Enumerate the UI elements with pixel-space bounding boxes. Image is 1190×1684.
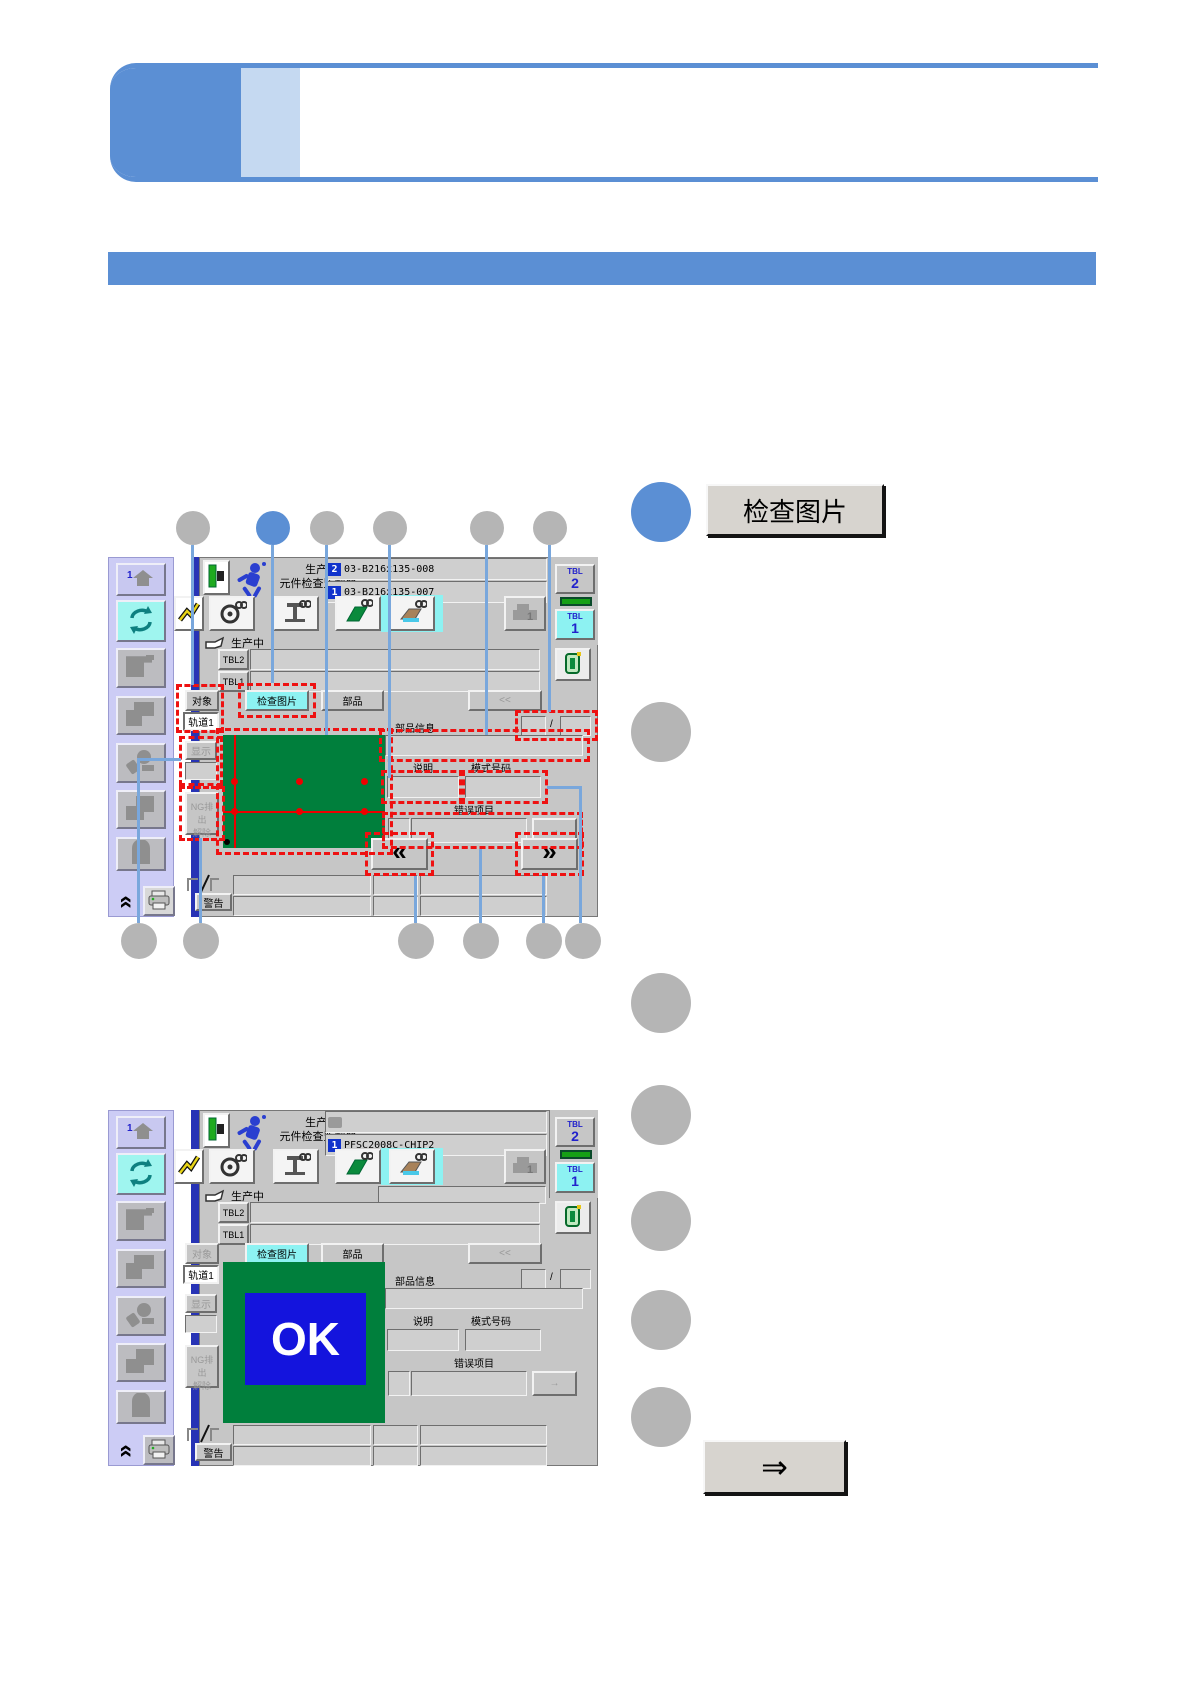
board-setup-icon <box>124 1206 158 1237</box>
mark-dot <box>296 778 303 785</box>
log-cell <box>420 1425 547 1445</box>
page-next-button[interactable]: » <box>521 838 578 870</box>
table2-badge: 2 <box>328 563 341 576</box>
track1-label: 轨道1 <box>188 714 214 729</box>
board-data-icon <box>563 651 583 678</box>
tbl2-button[interactable]: TBL 2 <box>555 1117 595 1147</box>
collapse-label: << <box>499 1248 511 1259</box>
board-data-button[interactable] <box>555 1201 591 1234</box>
description-label: 说明 <box>413 760 433 775</box>
tbl2-row-field <box>250 649 540 670</box>
track1-tab[interactable]: 轨道1 <box>183 712 219 731</box>
maintenance-robot-icon <box>124 1300 158 1333</box>
tbl1-row-text: TBL1 <box>223 677 245 687</box>
maintenance-robot-icon <box>124 747 158 780</box>
program-field-2: 2 03-B216x135-008 <box>325 558 547 580</box>
page-prev-button[interactable]: « <box>371 838 428 870</box>
target-button[interactable]: 对象 <box>185 690 219 711</box>
display-field <box>185 762 217 780</box>
head-monitor-button[interactable] <box>273 1149 319 1184</box>
double-arrow-right-icon: ⇒ <box>761 1448 788 1486</box>
board-setup-button[interactable] <box>116 1201 166 1241</box>
error-text-field <box>411 818 527 843</box>
head-monitor-icon <box>281 599 311 628</box>
feeder-monitor-icon <box>217 1152 247 1181</box>
production-cycle-button[interactable] <box>116 600 166 642</box>
error-item-label: 错误项目 <box>454 802 494 817</box>
callout-line <box>199 838 202 923</box>
callout-line <box>191 545 194 685</box>
tray-button[interactable] <box>116 837 166 871</box>
tbl1-button[interactable]: TBL 1 <box>555 1162 595 1193</box>
inspect-picture-tab[interactable]: 检查图片 <box>245 1243 309 1264</box>
print-button[interactable] <box>143 1435 175 1465</box>
printer-icon <box>147 890 171 913</box>
tbl2-button[interactable]: TBL 2 <box>555 564 595 594</box>
mark-dot <box>361 778 368 785</box>
error-item-label: 错误项目 <box>454 1355 494 1370</box>
data-button[interactable] <box>116 790 166 829</box>
transport-monitor-button[interactable] <box>335 1149 381 1184</box>
result-ok-text: OK <box>271 1312 340 1366</box>
display-button[interactable]: 显示 <box>185 1294 217 1313</box>
tbl1-row-field <box>250 671 540 692</box>
data-button[interactable] <box>116 1343 166 1382</box>
tbl2-row-label: TBL2 <box>218 649 249 670</box>
log-cell <box>233 875 371 895</box>
maintenance-button[interactable] <box>116 1296 166 1336</box>
part-info-field <box>385 1288 583 1309</box>
display-field <box>185 1315 217 1333</box>
screenshot-2: 1 <box>108 1110 598 1466</box>
header-banner <box>110 63 1098 182</box>
inspect-picture-tab[interactable]: 检查图片 <box>245 690 309 711</box>
inspection-monitor-button[interactable] <box>389 596 435 631</box>
machine-icon: 1 <box>511 1153 539 1180</box>
log-cell <box>373 896 418 916</box>
step-marker <box>398 923 434 959</box>
mark-dot <box>231 778 238 785</box>
arrow-right-icon: → <box>550 825 560 836</box>
layout-icon <box>124 700 158 731</box>
step-marker <box>631 1290 691 1350</box>
callout-line <box>137 758 140 923</box>
svg-text:1: 1 <box>127 570 133 581</box>
step-marker <box>565 923 601 959</box>
home-icon: 1 <box>126 1121 156 1144</box>
step-marker <box>631 1387 691 1447</box>
chevron-up-icon: « <box>115 1444 139 1457</box>
step-marker <box>631 973 691 1033</box>
inspect-image-side-button[interactable]: 检查图片 <box>706 484 884 536</box>
tbl2-row-text: TBL2 <box>223 655 245 665</box>
display-label: 显示 <box>191 743 211 758</box>
printer-icon <box>147 1439 171 1462</box>
layout-button[interactable] <box>116 696 166 735</box>
origin-dot <box>224 839 230 845</box>
maintenance-button[interactable] <box>116 743 166 783</box>
part-tab[interactable]: 部品 <box>321 1243 384 1264</box>
tbl1-number: 1 <box>557 1174 593 1188</box>
file-icon <box>328 1117 342 1128</box>
sidebar: 1 <box>108 1110 174 1466</box>
tbl1-row-label: TBL1 <box>218 1224 249 1245</box>
head-monitor-button[interactable] <box>273 596 319 631</box>
proceed-side-button[interactable]: ⇒ <box>703 1440 846 1494</box>
part-count-slash: / <box>550 1272 553 1283</box>
transport-monitor-icon <box>343 1152 373 1181</box>
track1-label: 轨道1 <box>188 1267 214 1282</box>
feeder-monitor-button[interactable] <box>209 1149 255 1184</box>
error-next-button[interactable]: → <box>532 1371 577 1396</box>
callout-line <box>547 786 582 789</box>
mark-dot <box>296 808 303 815</box>
part-tab[interactable]: 部品 <box>321 690 384 711</box>
tbl1-row-field <box>250 1224 540 1245</box>
tbl1-button[interactable]: TBL 1 <box>555 609 595 640</box>
callout-line <box>388 545 391 778</box>
crosshair-vline <box>234 735 236 848</box>
step-marker <box>526 923 562 959</box>
exit-icon <box>208 1116 226 1145</box>
tray-button[interactable] <box>116 1390 166 1424</box>
mode-number-field <box>465 776 541 798</box>
section-title-bar <box>108 252 1096 285</box>
step-marker-active <box>256 511 290 545</box>
tbl2-number: 2 <box>557 576 593 590</box>
inspect-picture-label: 检查图片 <box>257 1246 297 1261</box>
svg-text:1: 1 <box>127 1123 133 1134</box>
callout-line <box>137 758 181 761</box>
feeder-monitor-button[interactable] <box>209 596 255 631</box>
tbl1-row-text: TBL1 <box>223 1230 245 1240</box>
log-cell <box>233 1446 371 1466</box>
print-button[interactable] <box>143 886 175 916</box>
step-marker <box>631 702 691 762</box>
tbl1-number: 1 <box>557 621 593 635</box>
step-marker <box>310 511 344 545</box>
layout-icon <box>124 1253 158 1284</box>
callout-line <box>485 545 488 735</box>
step-marker <box>470 511 504 545</box>
tbl2-row-field <box>250 1202 540 1223</box>
step-marker-active <box>631 482 691 542</box>
production-cycle-button[interactable] <box>116 1153 166 1195</box>
mode-number-field <box>465 1329 541 1351</box>
part-info-label: 部品信息 <box>395 720 435 735</box>
exec-indicator <box>560 597 592 606</box>
tbl2-row-text: TBL2 <box>223 1208 245 1218</box>
part-info-label: 部品信息 <box>395 1273 435 1288</box>
cycle-icon <box>124 1157 158 1192</box>
log-cell <box>420 1446 547 1466</box>
callout-line <box>542 876 545 923</box>
log-cell <box>420 896 547 916</box>
step-marker <box>631 1191 691 1251</box>
tbl1-row-label: TBL1 <box>218 671 249 692</box>
step-marker <box>373 511 407 545</box>
part-info-field <box>385 735 583 756</box>
inspection-monitor-icon <box>397 599 427 628</box>
svg-text:1: 1 <box>527 1164 533 1176</box>
part-total-field <box>560 716 591 736</box>
collapse-button[interactable]: << <box>468 1243 542 1264</box>
exit-button[interactable] <box>203 560 230 595</box>
machine-icon: 1 <box>511 600 539 627</box>
head-monitor-icon <box>281 1152 311 1181</box>
log-cell <box>373 1446 418 1466</box>
ng-discharge-label: NG排出 <box>187 800 217 826</box>
data-icon <box>124 1347 158 1378</box>
inspection-monitor-button[interactable] <box>389 1149 435 1184</box>
screenshot-1: 1 <box>108 557 598 917</box>
display-button[interactable]: 显示 <box>185 741 217 760</box>
home-button[interactable]: 1 <box>116 563 166 596</box>
inspect-picture-label: 检查图片 <box>257 693 297 708</box>
cycle-icon <box>124 604 158 639</box>
warning-label: 警告 <box>204 1445 224 1460</box>
warning-tab[interactable]: 警告 <box>195 1443 232 1461</box>
callout-line <box>325 545 328 735</box>
callout-line <box>414 876 417 923</box>
collapse-button[interactable]: << <box>468 690 542 711</box>
part-count-field <box>521 1269 546 1289</box>
mode-number-label: 模式号码 <box>471 1313 511 1328</box>
board-data-icon <box>563 1204 583 1231</box>
collapse-label: << <box>499 695 511 706</box>
tbl2-row-label: TBL2 <box>218 1202 249 1223</box>
exec-indicator <box>560 1150 592 1159</box>
feeder-monitor-icon <box>217 599 247 628</box>
ng-release-label: 解除 <box>187 1379 217 1392</box>
warning-label: 警告 <box>204 895 224 910</box>
callout-line <box>271 545 274 683</box>
inspection-monitor-icon <box>397 1152 427 1181</box>
part-label: 部品 <box>343 693 363 708</box>
manual-page: 1 <box>0 0 1190 1684</box>
tbl2-number: 2 <box>557 1129 593 1143</box>
board-setup-button[interactable] <box>116 648 166 688</box>
mark-dot <box>361 808 368 815</box>
inspection-image <box>223 735 385 848</box>
sidebar: 1 <box>108 557 174 917</box>
machine-button[interactable]: 1 <box>504 1149 546 1184</box>
transport-monitor-button[interactable] <box>335 596 381 631</box>
log-cell <box>233 896 371 916</box>
arrow-right-icon: → <box>550 1378 560 1389</box>
callout-line <box>579 786 582 923</box>
home-button[interactable]: 1 <box>116 1116 166 1149</box>
svg-text:1: 1 <box>527 611 533 623</box>
callout-line <box>548 545 551 712</box>
display-label: 显示 <box>191 1296 211 1311</box>
header-accent-block <box>110 68 241 177</box>
description-field <box>387 776 459 798</box>
target-label: 对象 <box>192 1246 212 1261</box>
description-label: 说明 <box>413 1313 433 1328</box>
trend-button[interactable] <box>174 596 204 631</box>
step-marker <box>176 511 210 545</box>
tray-icon <box>128 1393 154 1422</box>
transport-monitor-icon <box>343 599 373 628</box>
ng-discharge-label: NG排出 <box>187 1353 217 1379</box>
layout-button[interactable] <box>116 1249 166 1288</box>
target-label: 对象 <box>192 693 212 708</box>
exit-icon <box>208 563 226 592</box>
step-marker <box>533 511 567 545</box>
board-setup-icon <box>124 653 158 684</box>
trend-icon <box>178 1153 200 1180</box>
ng-release-label: 解除 <box>187 826 217 839</box>
part-count-slash: / <box>550 719 553 730</box>
chevron-up-icon: « <box>115 895 139 908</box>
result-ok-box: OK <box>245 1293 366 1385</box>
target-button[interactable]: 对象 <box>185 1243 219 1264</box>
ng-discharge-release-button[interactable]: NG排出 解除 <box>185 1345 219 1388</box>
step-marker <box>631 1085 691 1145</box>
part-count-field <box>521 716 546 736</box>
ng-discharge-release-button[interactable]: NG排出 解除 <box>185 792 219 835</box>
tray-icon <box>128 840 154 869</box>
machine-button[interactable]: 1 <box>504 596 546 631</box>
description-field <box>387 1329 459 1351</box>
trend-button[interactable] <box>174 1149 204 1184</box>
mode-number-label: 模式号码 <box>471 760 511 775</box>
inspect-image-side-label: 检查图片 <box>743 492 847 529</box>
home-icon: 1 <box>126 568 156 591</box>
part-total-field <box>560 1269 591 1289</box>
header-accent-light-block <box>241 68 300 177</box>
error-index-field <box>388 1371 410 1396</box>
mark-dot <box>231 808 238 815</box>
collapse-sidebar-button[interactable]: « <box>112 1437 142 1464</box>
log-cell <box>373 1425 418 1445</box>
exit-button[interactable] <box>203 1113 230 1148</box>
step-marker <box>463 923 499 959</box>
inspection-image: OK <box>223 1262 385 1423</box>
step-marker <box>183 923 219 959</box>
step-marker <box>121 923 157 959</box>
program-field-2 <box>325 1111 547 1133</box>
log-cell <box>373 875 418 895</box>
trend-icon <box>178 600 200 627</box>
log-cell <box>420 875 547 895</box>
log-cell <box>233 1425 371 1445</box>
callout-line <box>479 849 482 923</box>
error-text-field <box>411 1371 527 1396</box>
data-icon <box>124 794 158 825</box>
part-label: 部品 <box>343 1246 363 1261</box>
board-data-button[interactable] <box>555 648 591 681</box>
track1-tab[interactable]: 轨道1 <box>183 1265 219 1284</box>
